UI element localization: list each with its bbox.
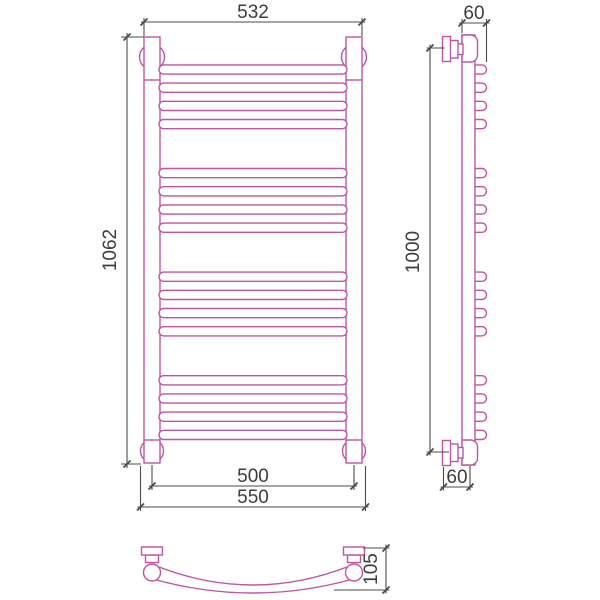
rung-loop bbox=[475, 187, 487, 196]
rung-loop bbox=[475, 205, 486, 214]
ladder-rung bbox=[159, 412, 347, 421]
rung-loop bbox=[475, 430, 487, 439]
bottom-view: 105 bbox=[142, 545, 390, 594]
ladder-rung bbox=[159, 223, 347, 232]
rung-loop bbox=[475, 412, 487, 421]
ladder-rung bbox=[159, 394, 347, 403]
rung-loop bbox=[475, 327, 487, 336]
ladder-rung bbox=[159, 120, 347, 129]
dim-105-label: 105 bbox=[361, 553, 382, 585]
rung-loop bbox=[475, 83, 487, 92]
bow-rail-back-edge bbox=[153, 579, 353, 593]
technical-drawing-canvas: 532 1062 500 550 bbox=[0, 0, 600, 600]
ladder-rung bbox=[159, 169, 347, 178]
dim-500-label: 500 bbox=[237, 466, 269, 487]
bottom-wall-bracket bbox=[443, 441, 464, 466]
dim-550-label: 550 bbox=[237, 487, 269, 508]
dim-1062-label: 1062 bbox=[100, 229, 121, 271]
rung-loop bbox=[475, 223, 487, 232]
rung-loop bbox=[475, 101, 487, 110]
right-rail bbox=[346, 37, 362, 463]
side-view: 60 1000 60 bbox=[403, 3, 490, 491]
dimension-width-top: 532 bbox=[141, 2, 366, 36]
ladder-rung bbox=[159, 205, 347, 214]
rung-loop bbox=[475, 376, 487, 385]
dim-1000-label: 1000 bbox=[403, 231, 424, 273]
ladder-rung bbox=[159, 83, 347, 92]
rung-loop bbox=[475, 65, 486, 74]
bow-right-fitting-circle bbox=[346, 564, 363, 581]
bow-left-fitting-circle bbox=[144, 564, 161, 581]
top-fitting-block bbox=[462, 35, 478, 62]
dim-60-top-label: 60 bbox=[463, 3, 484, 24]
rung-loop bbox=[475, 394, 487, 403]
side-tube bbox=[462, 35, 475, 465]
dim-532-label: 532 bbox=[237, 2, 269, 23]
dimension-mount-height: 1000 bbox=[403, 45, 449, 456]
ladder-rung bbox=[159, 309, 347, 318]
bracket-flange bbox=[443, 37, 451, 62]
rung-loop bbox=[475, 272, 487, 281]
bracket-flange bbox=[443, 441, 451, 466]
left-rail bbox=[144, 37, 160, 463]
bow-left-collar bbox=[146, 555, 159, 563]
bottom-fitting-block bbox=[462, 440, 478, 465]
side-rung-loops bbox=[475, 65, 487, 440]
ladder-rung bbox=[159, 430, 347, 439]
front-view: 532 1062 500 550 bbox=[100, 2, 369, 511]
dimension-height-overall: 1062 bbox=[100, 33, 144, 468]
ladder-rung bbox=[159, 327, 347, 336]
towel-rail-drawing: 532 1062 500 550 bbox=[0, 0, 600, 600]
ladder-rung bbox=[159, 376, 347, 385]
bow-right-collar bbox=[348, 555, 361, 563]
top-wall-bracket bbox=[443, 37, 464, 62]
ladder-rung bbox=[159, 101, 347, 110]
ladder-rung bbox=[159, 65, 347, 74]
rung-loop bbox=[475, 309, 487, 318]
dim-60-bottom-label: 60 bbox=[446, 467, 467, 488]
ladder-rungs bbox=[159, 65, 347, 440]
bow-left-flange bbox=[142, 547, 163, 555]
dimension-depth-bottom: 60 bbox=[440, 466, 474, 491]
bow-rail-front-edge bbox=[159, 567, 347, 585]
rung-loop bbox=[475, 169, 487, 178]
rung-loop bbox=[475, 290, 487, 299]
ladder-rung bbox=[159, 272, 347, 281]
ladder-rung bbox=[159, 290, 347, 299]
ladder-rung bbox=[159, 187, 347, 196]
rung-loop bbox=[475, 120, 487, 129]
